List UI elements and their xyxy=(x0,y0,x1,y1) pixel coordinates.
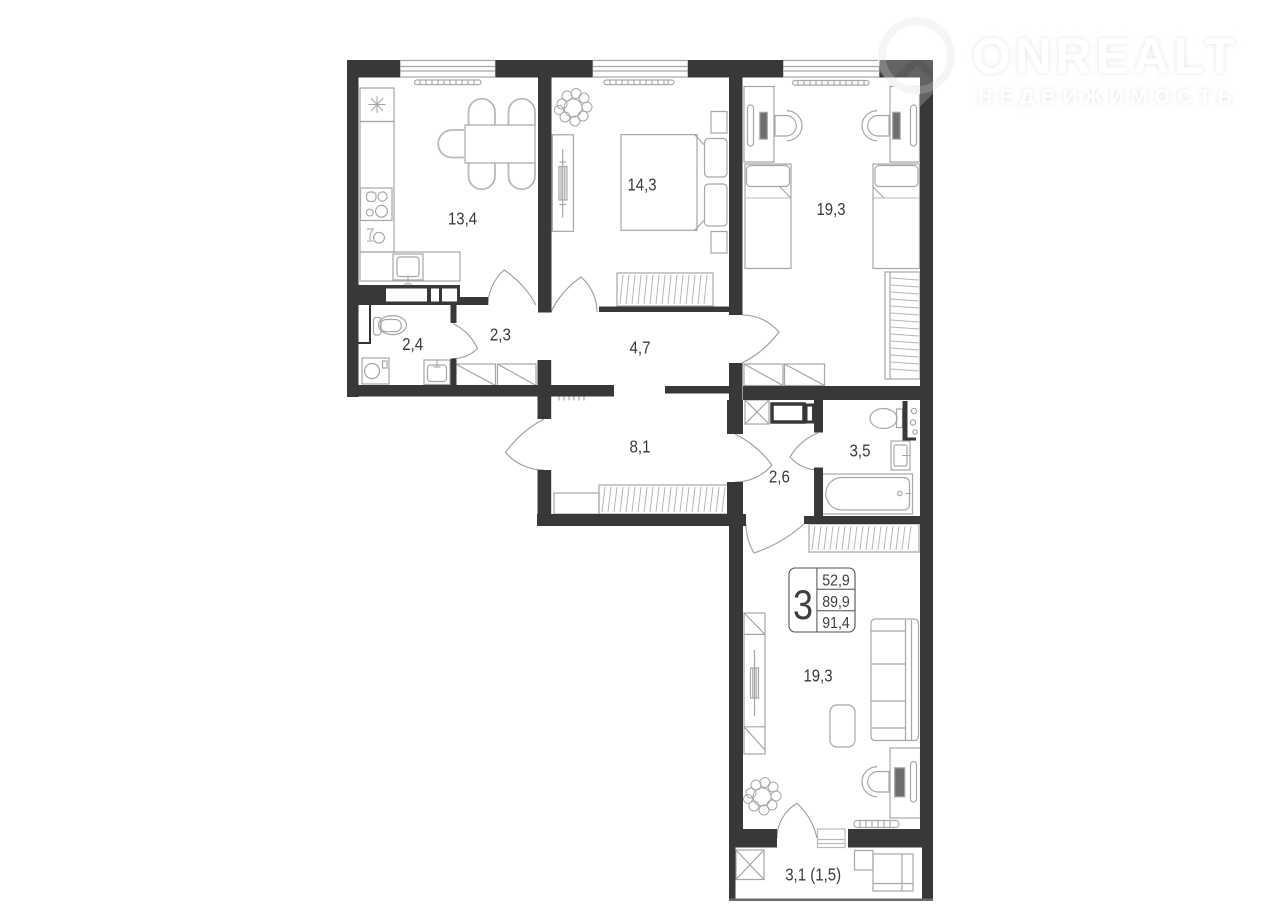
svg-text:3,1 (1,5): 3,1 (1,5) xyxy=(785,865,841,885)
svg-text:3: 3 xyxy=(793,581,813,628)
svg-text:2,6: 2,6 xyxy=(769,466,790,486)
svg-text:13,4: 13,4 xyxy=(448,209,477,229)
svg-text:89,9: 89,9 xyxy=(822,594,850,611)
svg-text:19,3: 19,3 xyxy=(817,199,846,219)
svg-text:4,7: 4,7 xyxy=(630,338,651,358)
svg-text:14,3: 14,3 xyxy=(628,175,657,195)
svg-text:19,3: 19,3 xyxy=(804,666,833,686)
svg-text:2,3: 2,3 xyxy=(490,325,511,345)
svg-text:52,9: 52,9 xyxy=(822,573,850,590)
svg-text:НЕДВИЖИМОСТЬ: НЕДВИЖИМОСТЬ xyxy=(978,87,1239,109)
svg-text:8,1: 8,1 xyxy=(630,436,651,456)
svg-text:ONREALT: ONREALT xyxy=(972,28,1239,84)
svg-text:3,5: 3,5 xyxy=(850,441,871,461)
svg-text:91,4: 91,4 xyxy=(822,615,850,632)
svg-text:2,4: 2,4 xyxy=(402,334,423,354)
